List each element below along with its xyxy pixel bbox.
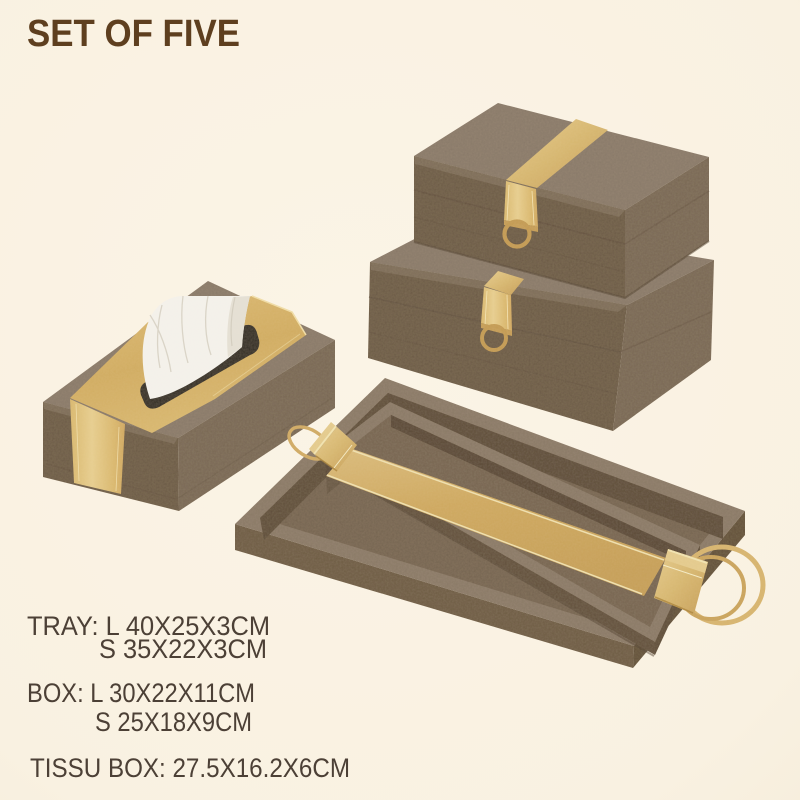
svg-text:S 35X22X3CM: S 35X22X3CM: [99, 634, 267, 664]
svg-text:BOX: L 30X22X11CM: BOX: L 30X22X11CM: [27, 678, 255, 708]
svg-text:S 25X18X9CM: S 25X18X9CM: [95, 707, 252, 737]
svg-text:TISSU BOX: 27.5X16.2X6CM: TISSU BOX: 27.5X16.2X6CM: [30, 753, 350, 783]
svg-text:SET OF FIVE: SET OF FIVE: [27, 13, 240, 55]
